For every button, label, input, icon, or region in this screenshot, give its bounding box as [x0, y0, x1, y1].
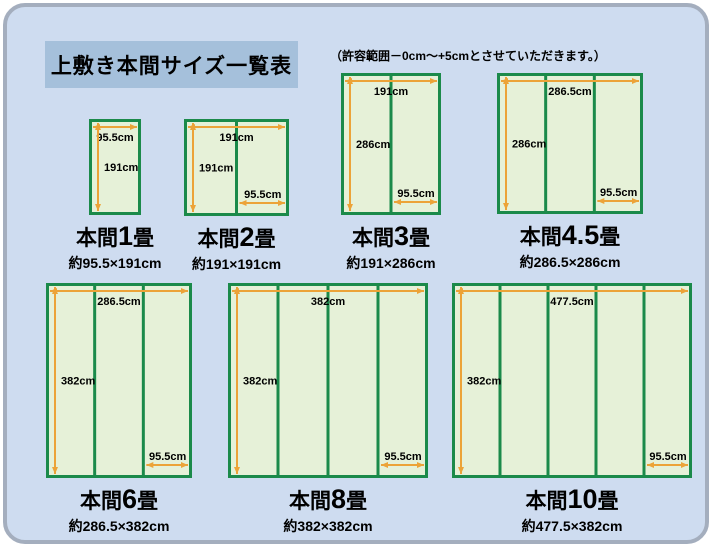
- dimension-label: 286.5cm: [548, 86, 592, 98]
- diagram-honma-3jo: 191cm286cm95.5cm 本間3畳 約191×286cm: [341, 73, 441, 215]
- dimension-label: 95.5cm: [397, 188, 435, 200]
- dimension-label: 95.5cm: [384, 451, 422, 463]
- caption-honma-3jo: 本間3畳 約191×286cm: [346, 221, 435, 273]
- diagram-honma-8jo: 382cm382cm95.5cm 本間8畳 約382×382cm: [228, 283, 428, 478]
- name-number: 3: [394, 221, 409, 251]
- diagram-dims: 約382×382cm: [283, 516, 372, 536]
- tolerance-note: （許容範囲－0cm～+5cmとさせていただきます。）: [330, 47, 606, 64]
- dimension-label: 286cm: [512, 139, 546, 151]
- dimension-label: 95.5cm: [149, 451, 187, 463]
- diagram-honma-10jo: 477.5cm382cm95.5cm 本間10畳 約477.5×382cm: [452, 283, 692, 478]
- dimension-label: 191cm: [104, 162, 138, 174]
- dimension-label: 382cm: [243, 376, 277, 388]
- name-suffix: 畳: [346, 490, 367, 513]
- mat-honma-2jo: 191cm191cm95.5cm: [184, 119, 289, 216]
- name-prefix: 本間: [352, 227, 394, 250]
- name-prefix: 本間: [520, 226, 562, 249]
- mat-honma-8jo: 382cm382cm95.5cm: [228, 283, 428, 478]
- diagram-dims: 約191×286cm: [346, 253, 435, 273]
- name-suffix: 畳: [133, 227, 154, 250]
- name-suffix: 畳: [137, 490, 158, 513]
- dimension-label: 286cm: [356, 139, 390, 151]
- page-title-text: 上敷き本間サイズ一覧表: [51, 50, 292, 80]
- dimension-label: 477.5cm: [550, 296, 594, 308]
- dimension-label: 286.5cm: [97, 296, 141, 308]
- diagram-dims: 約286.5×382cm: [69, 516, 170, 536]
- diagram-name: 本間2畳: [192, 222, 281, 253]
- name-number: 1: [118, 221, 133, 251]
- name-suffix: 畳: [599, 226, 620, 249]
- dimension-label: 95.5cm: [96, 132, 134, 144]
- name-prefix: 本間: [289, 490, 331, 513]
- caption-honma-10jo: 本間10畳 約477.5×382cm: [522, 484, 623, 536]
- mat-svg: 286.5cm382cm95.5cm: [46, 283, 192, 478]
- name-number: 4.5: [562, 220, 600, 250]
- name-prefix: 本間: [525, 490, 567, 513]
- diagram-name: 本間3畳: [346, 221, 435, 252]
- diagram-honma-2jo: 191cm191cm95.5cm 本間2畳 約191×191cm: [184, 119, 289, 216]
- name-suffix: 畳: [409, 227, 430, 250]
- name-suffix: 畳: [255, 228, 276, 251]
- caption-honma-8jo: 本間8畳 約382×382cm: [283, 484, 372, 536]
- diagram-dims: 約477.5×382cm: [522, 516, 623, 536]
- name-number: 2: [239, 222, 254, 252]
- name-number: 8: [331, 484, 346, 514]
- mat-svg: 477.5cm382cm95.5cm: [452, 283, 692, 478]
- dimension-label: 191cm: [219, 132, 253, 144]
- name-number: 10: [567, 484, 597, 514]
- caption-honma-2jo: 本間2畳 約191×191cm: [192, 222, 281, 274]
- dimension-label: 95.5cm: [600, 187, 638, 199]
- caption-honma-4half-jo: 本間4.5畳 約286.5×286cm: [520, 220, 621, 272]
- name-prefix: 本間: [197, 228, 239, 251]
- diagram-honma-1jo: 95.5cm191cm 本間1畳 約95.5×191cm: [89, 119, 141, 215]
- name-suffix: 畳: [598, 490, 619, 513]
- mat-honma-6jo: 286.5cm382cm95.5cm: [46, 283, 192, 478]
- dimension-label: 95.5cm: [244, 189, 282, 201]
- dimension-label: 382cm: [61, 376, 95, 388]
- mat-honma-4half-jo: 286.5cm286cm95.5cm: [497, 73, 643, 214]
- mat-svg: 382cm382cm95.5cm: [228, 283, 428, 478]
- name-prefix: 本間: [80, 490, 122, 513]
- diagram-name: 本間6畳: [69, 484, 170, 515]
- diagram-name: 本間10畳: [522, 484, 623, 515]
- diagram-honma-4half-jo: 286.5cm286cm95.5cm 本間4.5畳 約286.5×286cm: [497, 73, 643, 214]
- dimension-label: 382cm: [311, 296, 345, 308]
- dimension-label: 382cm: [467, 376, 501, 388]
- diagram-dims: 約95.5×191cm: [68, 253, 161, 273]
- diagram-dims: 約191×191cm: [192, 254, 281, 274]
- mat-svg: 191cm191cm95.5cm: [184, 119, 289, 216]
- mat-svg: 191cm286cm95.5cm: [341, 73, 441, 215]
- mat-honma-3jo: 191cm286cm95.5cm: [341, 73, 441, 215]
- name-prefix: 本間: [76, 227, 118, 250]
- diagram-honma-6jo: 286.5cm382cm95.5cm 本間6畳 約286.5×382cm: [46, 283, 192, 478]
- mat-honma-10jo: 477.5cm382cm95.5cm: [452, 283, 692, 478]
- dimension-label: 191cm: [374, 86, 408, 98]
- diagram-dims: 約286.5×286cm: [520, 252, 621, 272]
- diagram-name: 本間4.5畳: [520, 220, 621, 251]
- caption-honma-1jo: 本間1畳 約95.5×191cm: [68, 221, 161, 273]
- mat-svg: 286.5cm286cm95.5cm: [497, 73, 643, 214]
- name-number: 6: [122, 484, 137, 514]
- dimension-label: 95.5cm: [649, 451, 687, 463]
- diagram-name: 本間8畳: [283, 484, 372, 515]
- mat-svg: 95.5cm191cm: [89, 119, 141, 215]
- diagram-name: 本間1畳: [68, 221, 161, 252]
- mat-honma-1jo: 95.5cm191cm: [89, 119, 141, 215]
- page-title: 上敷き本間サイズ一覧表: [45, 41, 298, 88]
- dimension-label: 191cm: [199, 163, 233, 175]
- caption-honma-6jo: 本間6畳 約286.5×382cm: [69, 484, 170, 536]
